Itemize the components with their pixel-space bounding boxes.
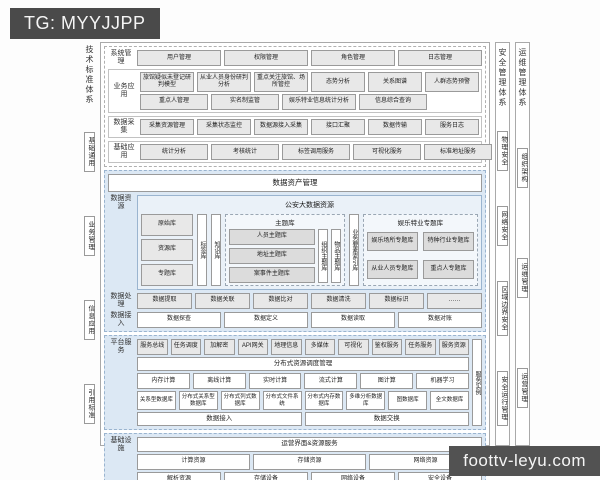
pillar-security-items: 物理安全网络安全区域边界安全安全运行管理	[497, 113, 508, 443]
compute-boxes: 内存计算离线计算实时计算流式计算图计算机器学习	[137, 373, 469, 389]
platform-service-box: API网关	[238, 339, 269, 355]
schedule-bar: 分布式资源调度管理	[137, 357, 469, 372]
theme-library-stack: 人员主题库地址主题库案事件主题库	[229, 229, 315, 283]
data-access-box: 数据探查	[137, 312, 221, 328]
data-process-box: 数据比对	[253, 293, 308, 309]
business-app-box-item: 重点人管理	[140, 94, 208, 110]
data-process-box: 数据提取	[137, 293, 192, 309]
device-boxes: 解析资源存储设备网络设备安全设备	[137, 472, 482, 480]
data-access-row: 数据接入 数据探查数据定义数据读取数据对账	[108, 312, 482, 328]
business-app-row1: 旅馆疑似未登记研判模型从业人员身份研判分析重点关注旅馆、场所管控态势分析关系图谱…	[140, 72, 479, 92]
ops-item: 运维管理	[517, 258, 528, 298]
data-collect-box-item: 采集资源管理	[140, 119, 194, 135]
platform-label: 平台服务	[108, 339, 134, 427]
system-mgmt-label: 系统管理	[108, 50, 134, 66]
system-mgmt-box: 日志管理	[398, 50, 482, 66]
platform-service-boxes: 服务总线任务调度加解密API网关地理信息多媒体可视化鉴权服务任务服务服务资源	[137, 339, 469, 355]
basic-app-box: 基础应用 统计分析考核统计标签调用服务可视化服务标准地址服务	[108, 141, 482, 163]
service-instance-box: 服务实例	[472, 339, 482, 427]
org-theme-library-box: 组织主题库	[318, 229, 328, 283]
data-access-bar: 数据接入	[137, 412, 302, 427]
business-app-box-item: 从业人员身份研判分析	[197, 72, 251, 92]
data-exchange-bar: 数据交换	[305, 412, 470, 427]
database-box: 图数据库	[388, 391, 427, 410]
library-box: 资源库	[141, 239, 193, 261]
data-process-box: 数据关联	[195, 293, 250, 309]
theme-library-box: 人员主题库	[229, 229, 315, 245]
pillar-security-title: 安全管理体系	[497, 45, 508, 113]
data-access-box: 数据定义	[224, 312, 308, 328]
device-box: 网络设备	[311, 472, 395, 480]
business-app-row2: 重点人管理实名制监管娱乐特业信息统计分析信息综合查询	[140, 94, 479, 110]
business-app-box-item: 态势分析	[311, 72, 365, 92]
system-mgmt-box: 权限管理	[224, 50, 308, 66]
data-collect-label: 数据采集	[111, 119, 137, 135]
infrastructure-content: 运营界面&资源服务 计算资源存储资源网络资源 解析资源存储设备网络设备安全设备	[137, 437, 482, 480]
compute-box: 流式计算	[304, 373, 357, 389]
platform-section: 平台服务 服务总线任务调度加解密API网关地理信息多媒体可视化鉴权服务任务服务服…	[104, 335, 486, 431]
compute-box: 实时计算	[249, 373, 302, 389]
data-access-label: 数据接入	[108, 312, 134, 328]
ops-item: 运营管理	[517, 368, 528, 408]
basic-app-box-item: 统计分析	[140, 144, 208, 160]
pillar-tech-standards: 技术标准体系 基础通用业务管理信息应用引用标准	[84, 42, 95, 446]
entertainment-group-grid: 娱乐场所专题库特种行业专题库从业人员专题库重点人专题库	[367, 229, 474, 283]
infrastructure-row: 基础设施 运营界面&资源服务 计算资源存储资源网络资源 解析资源存储设备网络设备…	[108, 437, 482, 480]
ops-item: 组织架构	[517, 148, 528, 188]
diagram-page: TG: MYYJJPP 技术标准体系 基础通用业务管理信息应用引用标准 系统管理…	[0, 0, 600, 480]
business-app-label: 业务应用	[111, 83, 137, 99]
entertainment-group: 娱乐特业专题库 娱乐场所专题库特种行业专题库从业人员专题库重点人专题库	[363, 214, 478, 286]
data-asset-section: 数据资产管理 数据资源 公安大数据资源 原始库资源库专题库 标签库 知识库 主题…	[104, 170, 486, 332]
basic-app-label: 基础应用	[111, 144, 137, 160]
pillar-security: 安全管理体系 物理安全网络安全区域边界安全安全运行管理	[495, 42, 510, 446]
business-app-box-item: 人群态势预警	[425, 72, 479, 92]
watermark-bottom-badge: foottv-leyu.com	[449, 446, 600, 476]
basic-app-box-item: 可视化服务	[353, 144, 421, 160]
data-collect-box-item: 数据源接入采集	[254, 119, 308, 135]
resource-box: 计算资源	[137, 454, 250, 470]
database-box: 多维分析数据库	[346, 391, 385, 410]
platform-service-box: 任务服务	[405, 339, 436, 355]
infrastructure-label: 基础设施	[108, 437, 134, 480]
architecture-frame: 技术标准体系 基础通用业务管理信息应用引用标准 系统管理 用户管理权限管理角色管…	[84, 42, 530, 446]
compute-box: 内存计算	[137, 373, 190, 389]
pillar-ops: 运维管理体系 组织架构运维管理运营管理	[515, 42, 530, 446]
business-app-box-item: 关系图谱	[368, 72, 422, 92]
basic-app-box-item: 考核统计	[211, 144, 279, 160]
compute-box: 图计算	[360, 373, 413, 389]
business-app-box-item: 信息综合查询	[359, 94, 427, 110]
tech-standard-item: 基础通用	[84, 132, 95, 172]
tech-standard-item: 信息应用	[84, 300, 95, 340]
platform-service-box: 服务总线	[137, 339, 168, 355]
business-app-box: 业务应用 旅馆疑似未登记研判模型从业人员身份研判分析重点关注旅馆、场所管控态势分…	[108, 69, 482, 113]
basic-app-box-item: 标签调用服务	[282, 144, 350, 160]
security-item: 物理安全	[497, 131, 508, 171]
compute-box: 机器学习	[416, 373, 469, 389]
business-app-box-item: 重点关注旅馆、场所管控	[254, 72, 308, 92]
data-collect-box-item: 数据传输	[368, 119, 422, 135]
big-data-box: 公安大数据资源 原始库资源库专题库 标签库 知识库 主题库 人员主题库地址主题库…	[137, 195, 482, 290]
entertainment-library-box: 娱乐场所专题库	[367, 232, 418, 251]
library-stack: 原始库资源库专题库	[141, 214, 193, 286]
knowledge-library-box: 知识库	[211, 214, 221, 286]
business-element-index-box: 业务要素索引库	[349, 214, 359, 286]
entertainment-library-box: 特种行业专题库	[423, 232, 474, 251]
data-collect-box-item: 接口汇聚	[311, 119, 365, 135]
business-app-rows: 旅馆疑似未登记研判模型从业人员身份研判分析重点关注旅馆、场所管控态势分析关系图谱…	[140, 72, 479, 110]
data-process-box: 数据标识	[369, 293, 424, 309]
entertainment-library-box: 重点人专题库	[423, 260, 474, 279]
data-access-box: 数据对账	[398, 312, 482, 328]
platform-service-box: 任务调度	[171, 339, 202, 355]
database-box: 全文数据库	[430, 391, 469, 410]
big-data-content: 原始库资源库专题库 标签库 知识库 主题库 人员主题库地址主题库案事件主题库 组…	[141, 214, 478, 286]
entertainment-library-box: 从业人员专题库	[367, 260, 418, 279]
pillar-tech-standards-items: 基础通用业务管理信息应用引用标准	[84, 110, 95, 446]
theme-library-title: 主题库	[229, 217, 341, 227]
database-box: 分布式关系型数据库	[179, 391, 218, 410]
database-box: 分布式内存数据库	[305, 391, 344, 410]
basic-app-boxes: 统计分析考核统计标签调用服务可视化服务标准地址服务	[140, 144, 479, 160]
platform-content: 服务总线任务调度加解密API网关地理信息多媒体可视化鉴权服务任务服务服务资源 分…	[137, 339, 469, 427]
platform-service-box: 服务资源	[439, 339, 470, 355]
tech-standard-item: 引用标准	[84, 384, 95, 424]
system-mgmt-box: 角色管理	[311, 50, 395, 66]
big-data-title: 公安大数据资源	[141, 199, 478, 211]
database-box: 关系型数据库	[137, 391, 176, 410]
system-mgmt-boxes: 用户管理权限管理角色管理日志管理	[137, 50, 482, 66]
basic-app-box-item: 标准地址服务	[424, 144, 492, 160]
tag-library-box: 标签库	[197, 214, 207, 286]
data-access-box: 数据读取	[311, 312, 395, 328]
theme-library-box: 地址主题库	[229, 248, 315, 264]
platform-service-box: 多媒体	[305, 339, 336, 355]
goods-theme-library-box: 物品主题库	[331, 229, 341, 283]
system-mgmt-box: 用户管理	[137, 50, 221, 66]
data-access-boxes: 数据探查数据定义数据读取数据对账	[137, 312, 482, 328]
library-box: 专题库	[141, 264, 193, 286]
compute-box: 离线计算	[193, 373, 246, 389]
data-resource-row: 数据资源 公安大数据资源 原始库资源库专题库 标签库 知识库 主题库 人员主题库…	[108, 195, 482, 290]
ops-interface-bar: 运营界面&资源服务	[137, 437, 482, 452]
data-collect-boxes: 采集资源管理采集状态监控数据源接入采集接口汇聚数据传输服务日志	[140, 119, 479, 135]
theme-library-box: 案事件主题库	[229, 267, 315, 283]
entertainment-group-title: 娱乐特业专题库	[367, 217, 474, 227]
data-process-box: 数据清洗	[311, 293, 366, 309]
platform-service-box: 鉴权服务	[372, 339, 403, 355]
device-box: 存储设备	[224, 472, 308, 480]
database-boxes: 关系型数据库分布式关系型数据库分布式列式数据库分布式文件系统分布式内存数据库多维…	[137, 391, 469, 410]
pillar-ops-items: 组织架构运维管理运营管理	[517, 113, 528, 443]
theme-library-group: 主题库 人员主题库地址主题库案事件主题库 组织主题库 物品主题库	[225, 214, 345, 286]
database-box: 分布式文件系统	[263, 391, 302, 410]
security-item: 区域边界安全	[497, 281, 508, 336]
theme-library-content: 人员主题库地址主题库案事件主题库 组织主题库 物品主题库	[229, 229, 341, 283]
data-process-row: 数据处理 数据提取数据关联数据比对数据清洗数据标识……	[108, 293, 482, 309]
business-app-box-item: 娱乐特业信息统计分析	[282, 94, 356, 110]
security-item: 安全运行管理	[497, 371, 508, 426]
system-mgmt-row: 系统管理 用户管理权限管理角色管理日志管理	[108, 50, 482, 66]
business-app-box-item: 实名制监管	[211, 94, 279, 110]
main-panel: 系统管理 用户管理权限管理角色管理日志管理 业务应用 旅馆疑似未登记研判模型从业…	[100, 42, 490, 446]
watermark-top-badge: TG: MYYJJPP	[10, 8, 160, 39]
pillar-ops-title: 运维管理体系	[517, 45, 528, 113]
device-box: 解析资源	[137, 472, 221, 480]
library-box: 原始库	[141, 214, 193, 236]
platform-row: 平台服务 服务总线任务调度加解密API网关地理信息多媒体可视化鉴权服务任务服务服…	[108, 339, 482, 427]
data-process-label: 数据处理	[108, 293, 134, 309]
data-collect-box-item: 采集状态监控	[197, 119, 251, 135]
platform-service-box: 地理信息	[271, 339, 302, 355]
resource-boxes: 计算资源存储资源网络资源	[137, 454, 482, 470]
platform-service-box: 加解密	[204, 339, 235, 355]
resource-box: 存储资源	[253, 454, 366, 470]
data-collect-box: 数据采集 采集资源管理采集状态监控数据源接入采集接口汇聚数据传输服务日志	[108, 116, 482, 138]
pillar-tech-standards-title: 技术标准体系	[84, 42, 95, 110]
business-app-box-item: 旅馆疑似未登记研判模型	[140, 72, 194, 92]
data-asset-title: 数据资产管理	[108, 174, 482, 192]
database-box: 分布式列式数据库	[221, 391, 260, 410]
tech-standard-item: 业务管理	[84, 216, 95, 256]
data-collect-box-item: 服务日志	[425, 119, 479, 135]
security-item: 网络安全	[497, 206, 508, 246]
infrastructure-section: 基础设施 运营界面&资源服务 计算资源存储资源网络资源 解析资源存储设备网络设备…	[104, 433, 486, 480]
platform-service-box: 可视化	[338, 339, 369, 355]
data-resource-label: 数据资源	[108, 195, 134, 290]
platform-bottom-bars: 数据接入 数据交换	[137, 412, 469, 427]
data-process-boxes: 数据提取数据关联数据比对数据清洗数据标识……	[137, 293, 482, 309]
application-section: 系统管理 用户管理权限管理角色管理日志管理 业务应用 旅馆疑似未登记研判模型从业…	[104, 46, 486, 167]
data-process-box: ……	[427, 293, 482, 309]
